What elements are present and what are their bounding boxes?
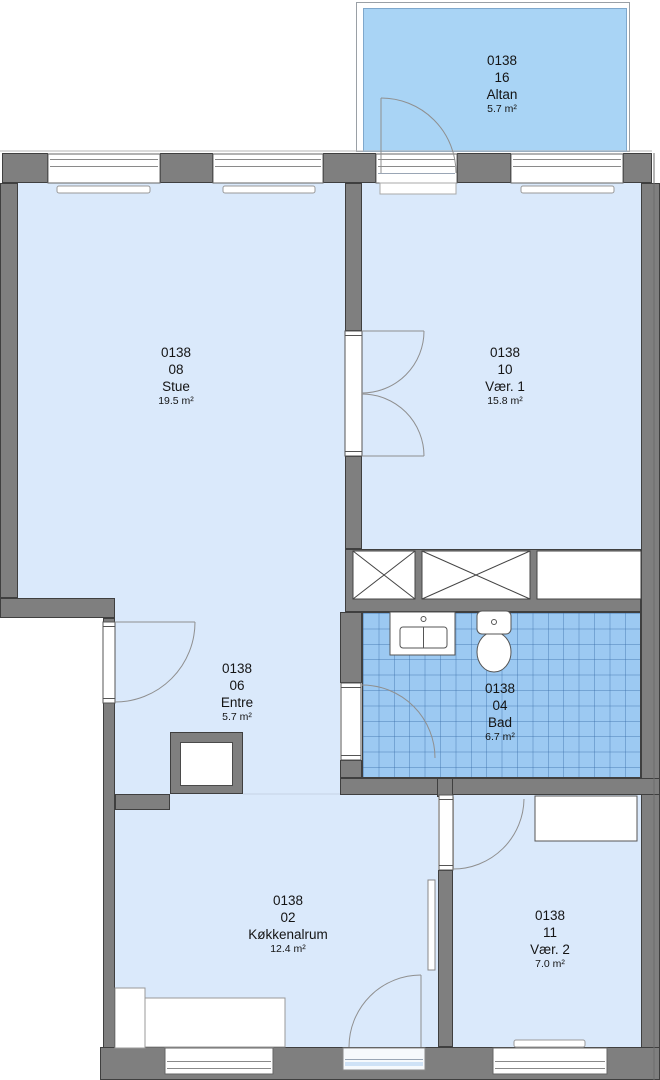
wall-bad-bottom	[340, 778, 660, 795]
room-area: 7.0 m²	[530, 958, 570, 971]
room-label-entre: 0138 06 Entre 5.7 m²	[221, 660, 253, 724]
wall-bad-left-lower	[340, 760, 362, 778]
room-number: 04	[485, 697, 515, 714]
room-label-koekkenalrum: 0138 02 Køkkenalrum 12.4 m²	[248, 892, 328, 956]
room-name: Altan	[487, 86, 518, 103]
duct-shaft-inner	[180, 742, 233, 786]
wall-closet-strip	[345, 549, 641, 612]
door-frame-vaer2	[439, 795, 453, 870]
door-frame-bad	[341, 683, 361, 760]
room-number: 16	[487, 69, 518, 86]
wall-bad-left-upper	[340, 612, 362, 683]
room-number: 06	[221, 677, 253, 694]
room-label-stue: 0138 08 Stue 19.5 m²	[158, 344, 194, 408]
wall-stue-vaer1-lower	[345, 456, 362, 549]
door-frame-stue-double	[345, 331, 362, 456]
wall-top-pier-1	[160, 153, 213, 183]
room-label-vaer1: 0138 10 Vær. 1 15.8 m²	[485, 344, 525, 408]
wall-right	[641, 183, 660, 1080]
room-code: 0138	[487, 52, 518, 69]
room-number: 02	[248, 909, 328, 926]
wall-stue-vaer1-upper	[345, 183, 362, 331]
room-name: Bad	[485, 714, 515, 731]
wall-kitchen-vaer2-divider	[438, 870, 453, 1047]
room-number: 10	[485, 361, 525, 378]
room-code: 0138	[221, 660, 253, 677]
room-label-altan: 0138 16 Altan 5.7 m²	[487, 52, 518, 116]
room-area: 19.5 m²	[158, 395, 194, 408]
room-name: Vær. 1	[485, 378, 525, 395]
wall-kitchen-top	[115, 794, 170, 810]
room-area: 15.8 m²	[485, 395, 525, 408]
room-code: 0138	[485, 344, 525, 361]
wall-left	[0, 183, 18, 598]
room-code: 0138	[158, 344, 194, 361]
balcony-door-glazing	[376, 154, 457, 183]
room-code: 0138	[248, 892, 328, 909]
room-area: 5.7 m²	[221, 711, 253, 724]
room-name: Entre	[221, 694, 253, 711]
wall-top-right-pier	[623, 153, 652, 183]
floor-plan: 0138 16 Altan 5.7 m² 0138 08 Stue 19.5 m…	[0, 0, 660, 1080]
window-vaer1	[511, 154, 623, 183]
room-name: Vær. 2	[530, 941, 570, 958]
wall-top-left-pier	[2, 153, 48, 183]
window-stue-left	[48, 154, 160, 183]
wall-left-lower	[103, 618, 115, 1048]
wall-top-pier-2	[323, 153, 376, 183]
room-code: 0138	[530, 907, 570, 924]
room-label-bad: 0138 04 Bad 6.7 m²	[485, 680, 515, 744]
wall-bottom-band	[100, 1047, 660, 1080]
room-area: 12.4 m²	[248, 943, 328, 956]
room-area: 6.7 m²	[485, 731, 515, 744]
room-name: Stue	[158, 378, 194, 395]
wall-stue-bottom	[0, 598, 115, 618]
wall-top-pier-3	[457, 153, 511, 183]
wall-vaer2-door-stub	[437, 778, 453, 797]
window-stue-right	[213, 154, 323, 183]
room-number: 08	[158, 361, 194, 378]
room-code: 0138	[485, 680, 515, 697]
room-label-vaer2: 0138 11 Vær. 2 7.0 m²	[530, 907, 570, 971]
room-name: Køkkenalrum	[248, 926, 328, 943]
floor-stue-extension	[115, 598, 345, 618]
room-number: 11	[530, 924, 570, 941]
room-area: 5.7 m²	[487, 103, 518, 116]
